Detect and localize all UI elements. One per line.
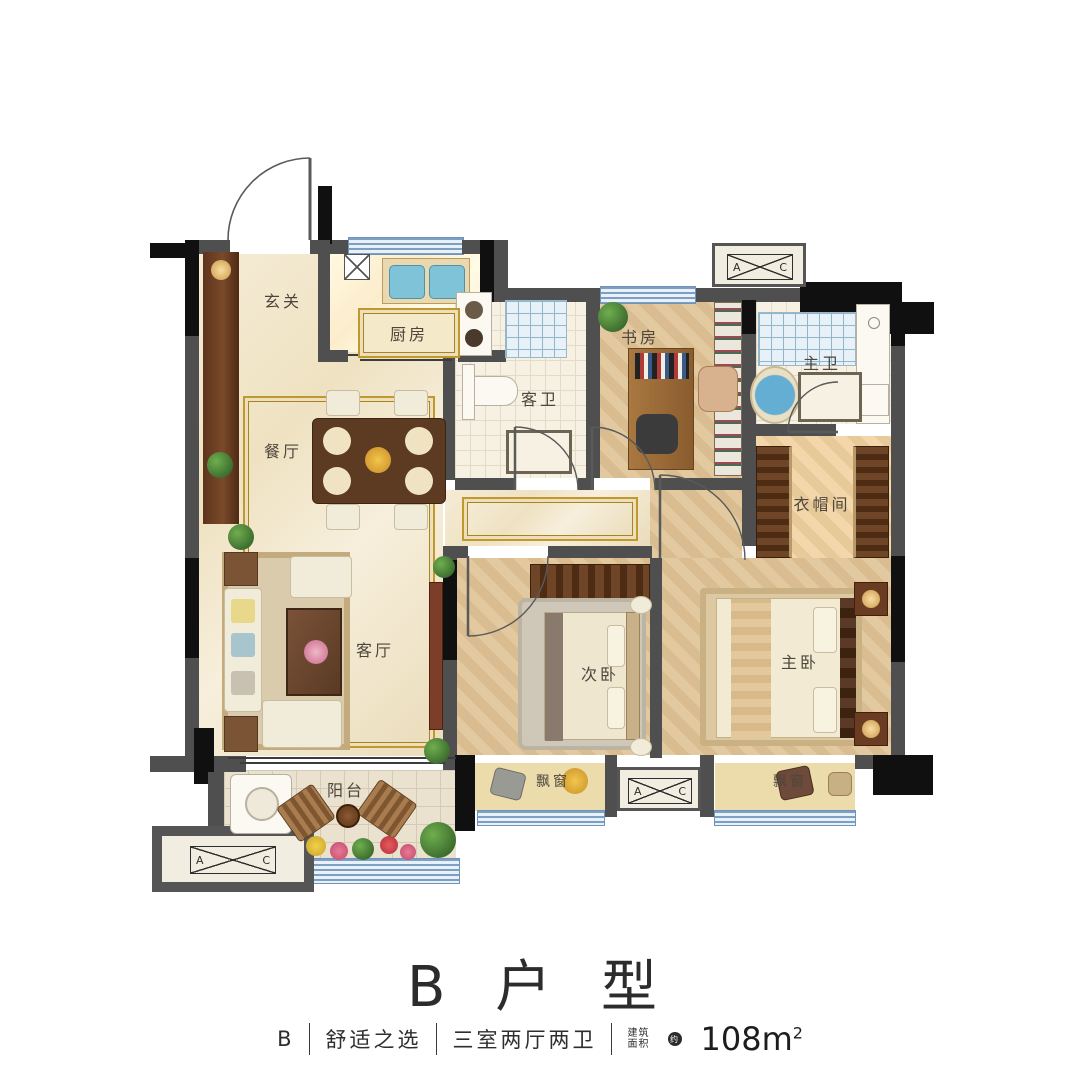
sink-basin <box>389 265 425 299</box>
lamp-icon <box>862 590 880 608</box>
plan-letter: B <box>277 1027 294 1051</box>
wall-segment <box>208 772 224 830</box>
nightstand-lamp <box>854 582 888 616</box>
ac-unit-box: AC <box>727 254 793 280</box>
window-bay-left <box>477 810 605 826</box>
wall-segment <box>548 546 652 558</box>
flower-decor <box>304 640 328 664</box>
lamp-icon <box>862 720 880 738</box>
floor-passage <box>650 478 742 558</box>
wall-segment <box>185 336 199 560</box>
wall-segment <box>742 300 756 546</box>
closet-wardrobe-left <box>756 446 792 558</box>
room-label-entry: 玄关 <box>264 288 302 312</box>
desk-books <box>635 353 689 379</box>
side-table <box>224 552 258 586</box>
master-bed <box>716 598 842 738</box>
ac-platform-bottom-middle: AC <box>617 767 701 811</box>
pillow <box>813 607 837 653</box>
floor-corridor <box>445 490 650 546</box>
room-label-study: 书房 <box>621 324 659 348</box>
nightstand-lamp <box>854 712 888 746</box>
flower-icon <box>400 844 416 860</box>
flower-icon <box>330 842 348 860</box>
area-label: 建筑 面积 <box>627 1028 649 1050</box>
wall-segment <box>855 755 875 769</box>
plant-icon <box>352 838 374 860</box>
plan-title: B 户 型 <box>0 942 1080 1023</box>
kitchen-sliding-door <box>360 359 452 361</box>
centerpiece <box>365 447 391 473</box>
wall-segment <box>605 755 617 817</box>
ac-unit-box: AC <box>628 778 692 804</box>
approx-badge: 约 <box>668 1032 682 1046</box>
wall-segment <box>756 424 836 436</box>
coffee-table <box>286 608 342 696</box>
room-label-second-bedroom: 次卧 <box>581 661 619 685</box>
room-label-kitchen: 厨房 <box>390 321 428 345</box>
study-guest-chair <box>698 366 738 412</box>
basin-icon <box>868 317 880 329</box>
bed-runner <box>545 613 563 741</box>
loveseat <box>262 700 342 748</box>
wall-segment <box>891 302 905 758</box>
pillow <box>607 687 625 729</box>
separator <box>436 1023 437 1055</box>
area-value: 108m2 <box>700 1020 802 1058</box>
closet-wardrobe-right <box>853 446 889 558</box>
armchair <box>290 556 352 598</box>
desk-chair <box>636 414 678 454</box>
separator <box>309 1023 310 1055</box>
wall-segment <box>578 478 594 490</box>
area-number: 108m <box>700 1020 792 1058</box>
column <box>185 558 199 660</box>
wall-segment <box>655 478 745 490</box>
guest-bath-shower <box>505 300 567 358</box>
area-exponent: 2 <box>793 1023 803 1042</box>
separator <box>611 1023 612 1055</box>
wall-segment <box>700 755 714 817</box>
wall-segment <box>650 558 662 758</box>
plate <box>323 467 351 495</box>
wall-segment <box>455 546 468 558</box>
floorplan-canvas: AC AC AC <box>0 0 1080 1080</box>
sofa-main <box>224 588 262 712</box>
plan-tagline: 舒适之选 <box>325 1024 421 1054</box>
column <box>150 243 188 258</box>
room-label-bay-window-left: 飘窗 <box>536 771 570 791</box>
second-bedroom-wardrobe <box>530 564 650 602</box>
column <box>742 300 756 334</box>
dining-chair <box>394 504 428 530</box>
bay-decor <box>828 772 852 796</box>
balcony-table <box>336 804 360 828</box>
pillow <box>231 633 255 657</box>
plan-subtitle: B 舒适之选 三室两厅两卫 建筑 面积 约 108m2 <box>0 1020 1080 1058</box>
ac-unit-box: AC <box>190 846 276 874</box>
window-bay-right <box>714 810 856 826</box>
ac-label-c: C <box>779 261 787 274</box>
ac-label-c: C <box>678 785 686 798</box>
plant-icon <box>207 452 233 478</box>
plant-icon <box>424 738 450 764</box>
ac-label-a: A <box>634 785 642 798</box>
guest-bath-rug <box>506 430 572 474</box>
wall-segment <box>455 478 515 490</box>
column <box>455 755 475 831</box>
column <box>185 240 199 336</box>
room-label-living: 客厅 <box>356 637 394 661</box>
column <box>891 302 905 346</box>
room-label-guest-bath: 客卫 <box>521 386 559 410</box>
washer-drum <box>245 787 279 821</box>
dining-chair <box>326 390 360 416</box>
window-kitchen <box>348 237 464 255</box>
pillow <box>231 599 255 623</box>
ac-platform-top: AC <box>712 243 806 287</box>
wall-segment <box>586 300 600 478</box>
wall-segment <box>318 350 348 362</box>
area-label-line1: 建筑 <box>627 1028 649 1039</box>
room-label-dining: 餐厅 <box>264 438 302 462</box>
kitchen-sliding-door <box>348 354 460 356</box>
pillow <box>231 671 255 695</box>
room-label-closet: 衣帽间 <box>793 491 850 515</box>
room-label-master-bath: 主卫 <box>803 350 841 374</box>
nightstand <box>630 596 652 614</box>
column <box>318 186 332 244</box>
plant-icon <box>433 556 455 578</box>
entry-lamp <box>211 260 231 280</box>
entry-shoe-cabinet <box>203 252 239 524</box>
plate <box>405 427 433 455</box>
second-bed-headboard <box>626 612 640 740</box>
kitchen-hob-icon <box>344 254 370 280</box>
balcony-sliding-door <box>228 757 456 759</box>
bed-runner <box>731 599 771 739</box>
master-bath-rug <box>798 372 862 422</box>
nightstand <box>630 738 652 756</box>
column <box>873 755 933 795</box>
dining-table <box>312 418 446 504</box>
flower-icon <box>306 836 326 856</box>
column <box>891 556 905 662</box>
room-label-balcony: 阳台 <box>327 777 365 801</box>
plant-icon <box>228 524 254 550</box>
plan-layout: 三室两厅两卫 <box>452 1024 596 1054</box>
kitchen-stove <box>456 292 492 356</box>
tv-cabinet <box>429 582 443 730</box>
burner <box>465 329 483 347</box>
flower-icon <box>380 836 398 854</box>
master-bath-tub <box>750 366 800 424</box>
side-table <box>224 716 258 752</box>
ac-platform-bottom-left: AC <box>152 826 314 892</box>
dining-chair <box>394 390 428 416</box>
plate <box>323 427 351 455</box>
ac-label-a: A <box>733 261 741 274</box>
room-label-bay-window-right: 飘窗 <box>773 771 807 791</box>
ac-label-a: A <box>196 854 204 867</box>
room-label-master-bedroom: 主卧 <box>781 649 819 673</box>
dining-chair <box>326 504 360 530</box>
wall-segment <box>462 240 482 254</box>
plant-icon <box>420 822 456 858</box>
guest-bath-toilet <box>474 376 518 406</box>
ac-label-c: C <box>262 854 270 867</box>
wall-segment <box>318 240 330 352</box>
pillow <box>813 687 837 733</box>
plate <box>405 467 433 495</box>
balcony-sliding-door <box>240 762 445 764</box>
burner <box>465 301 483 319</box>
area-label-line2: 面积 <box>627 1039 649 1050</box>
